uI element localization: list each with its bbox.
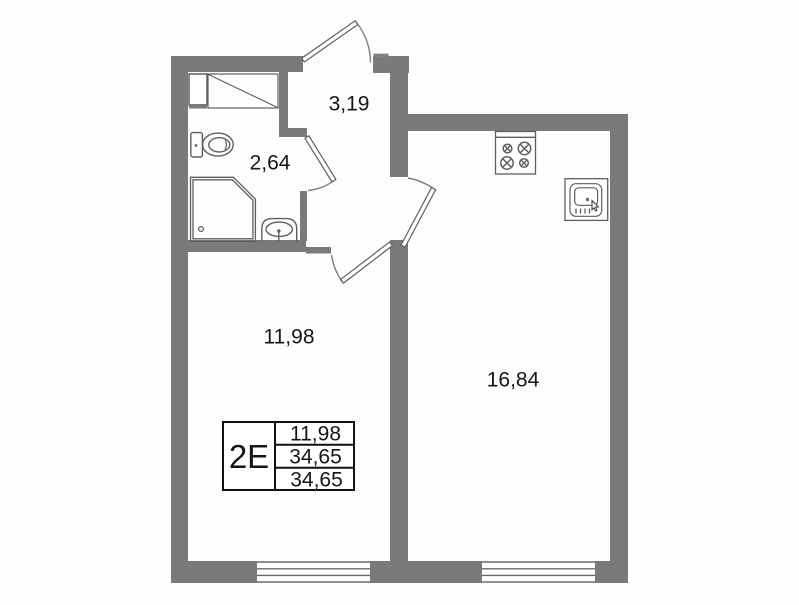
svg-text:2E: 2E (229, 438, 269, 475)
svg-text:11,98: 11,98 (264, 326, 315, 349)
svg-text:34,65: 34,65 (290, 469, 343, 492)
svg-text:2,64: 2,64 (250, 152, 291, 175)
svg-text:16,84: 16,84 (487, 369, 540, 392)
svg-text:11,98: 11,98 (290, 423, 341, 446)
svg-text:34,65: 34,65 (289, 446, 342, 469)
svg-text:3,19: 3,19 (329, 93, 370, 116)
